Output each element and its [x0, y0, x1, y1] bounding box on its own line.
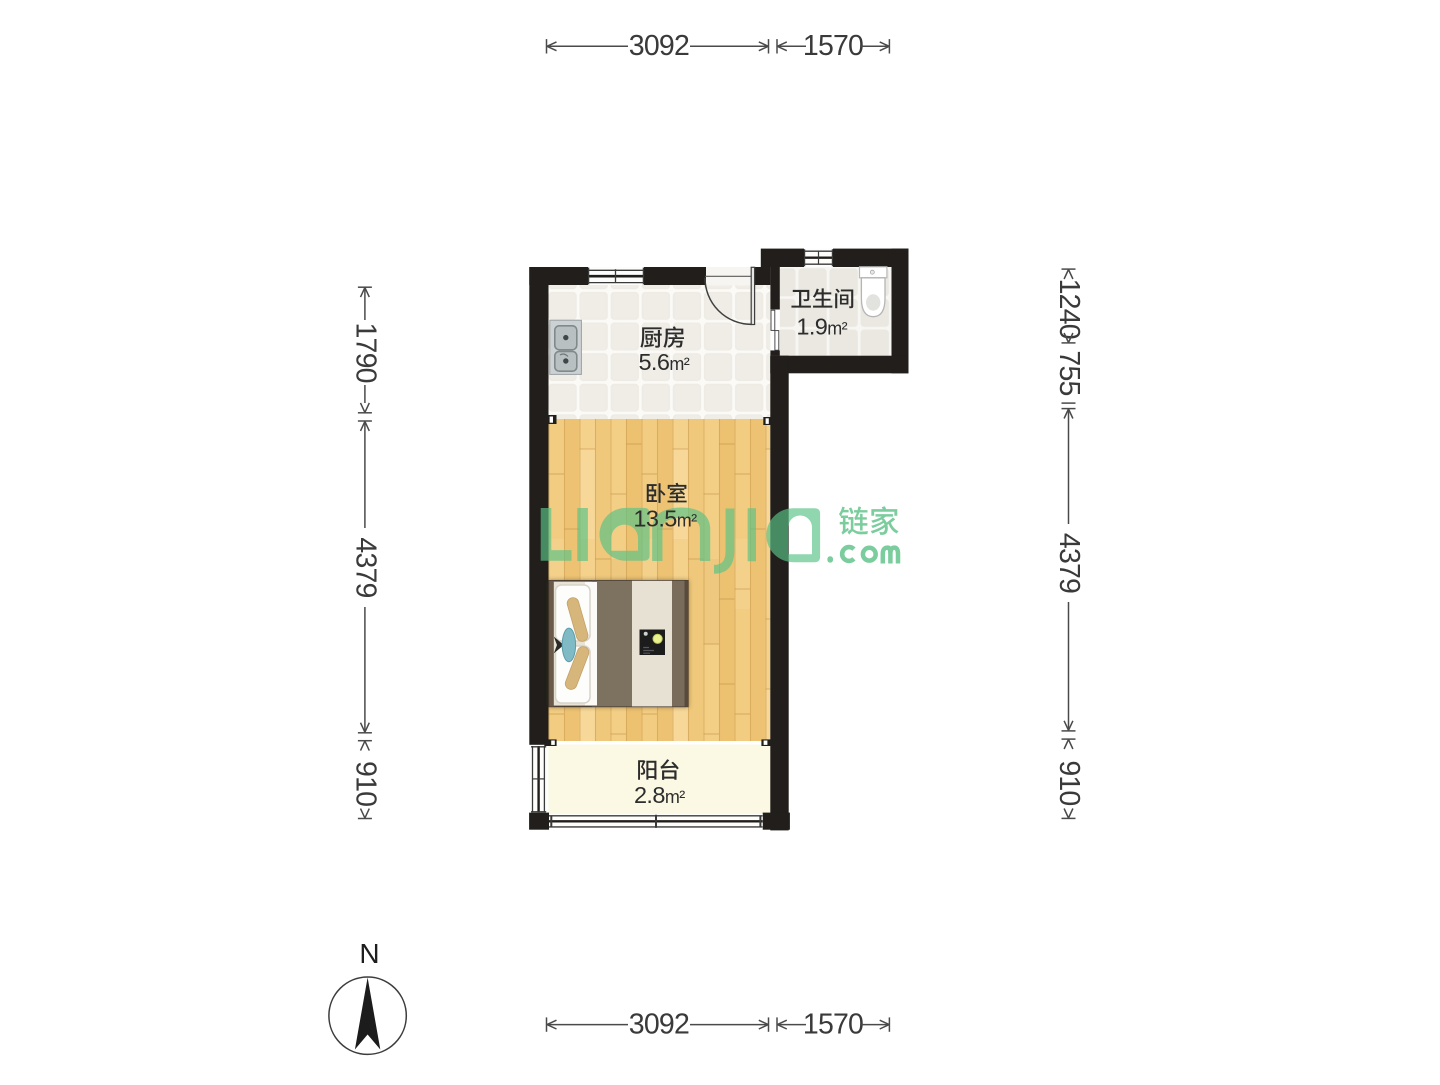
svg-text:910: 910 — [349, 761, 381, 806]
svg-text:3092: 3092 — [629, 30, 689, 62]
svg-text:910: 910 — [1053, 760, 1085, 805]
svg-text:N: N — [359, 938, 379, 969]
svg-text:1570: 1570 — [803, 1009, 863, 1041]
svg-text:1240: 1240 — [1053, 279, 1085, 339]
svg-text:4379: 4379 — [349, 537, 381, 597]
svg-text:4379: 4379 — [1053, 533, 1085, 593]
svg-text:1790: 1790 — [349, 322, 381, 382]
svg-text:3092: 3092 — [629, 1009, 689, 1041]
svg-text:1570: 1570 — [803, 30, 863, 62]
svg-text:755: 755 — [1053, 350, 1085, 395]
